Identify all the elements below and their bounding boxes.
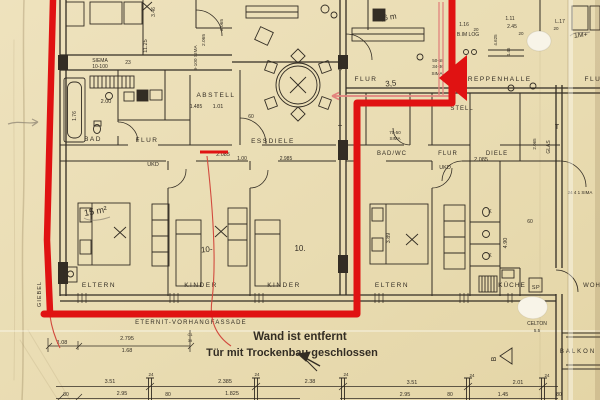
plan-label: 39: [188, 338, 193, 343]
plan-label: 1.16: [459, 22, 469, 28]
plan-label: T: [555, 124, 560, 131]
plan-label: 2.795: [120, 336, 134, 342]
floorplan-svg: BADFLURABSTELLESSDIELEELTERNKINDERKINDER…: [0, 0, 600, 400]
plan-label: B: [491, 356, 498, 361]
plan-label: 1.825: [225, 391, 239, 397]
facade-label: ETERNIT-VORHANGFASSADE: [135, 320, 247, 326]
page-edge: [595, 0, 600, 400]
plan-label: 5.5: [534, 328, 541, 333]
plan-label: 2.385: [218, 379, 232, 385]
plan-label: 70-50: [389, 130, 401, 135]
plan-label: 24: [469, 373, 475, 378]
plan-label: 23: [125, 60, 131, 66]
plan-label: 1.11: [505, 16, 515, 22]
hole-punch: [527, 31, 551, 51]
plan-label: 80: [63, 392, 69, 398]
plan-label: 2.065: [219, 19, 225, 31]
stairs-comb: [479, 276, 497, 292]
plan-label: 80: [556, 392, 562, 398]
plan-label: CELTON: [527, 321, 547, 327]
plan-label: BAD: [84, 136, 102, 143]
plan-label: 2.01: [513, 380, 524, 386]
plan-label: 1.76: [72, 111, 78, 121]
plan-label: TREPPENHALLE: [462, 76, 531, 83]
annotation-wall-removed: Wand ist entfernt: [253, 331, 347, 343]
plan-label: 2.45: [507, 24, 517, 30]
plan-label: 1.68: [122, 348, 133, 354]
plan-label: 3.89: [386, 233, 392, 244]
plan-label: SIMA: [389, 136, 400, 141]
plan-label: 4.90: [503, 238, 509, 249]
hole-punch: [518, 297, 548, 319]
plan-label: DIELE: [486, 151, 508, 157]
plan-label: GLAS: [338, 57, 344, 71]
plan-label: 24: [254, 372, 260, 377]
plan-label: 24: [148, 372, 154, 377]
annotation-door-closed: Tür mit Trockenbau geschlossen: [206, 347, 378, 359]
plan-label: 10-: [201, 244, 214, 254]
plan-label: BAD/WC: [377, 151, 407, 157]
plan-label: FLUR: [136, 137, 159, 144]
plan-label: 2.38: [305, 379, 316, 385]
plan-label: 1.01: [213, 104, 224, 110]
plan-label: 11.25: [143, 39, 149, 52]
plan-label: L.17: [555, 19, 565, 25]
plan-label: 9-100 SIMA: [193, 45, 199, 71]
plan-label: KINDER: [267, 282, 301, 289]
plan-label: 2.00: [101, 99, 112, 105]
plan-label: 2.085: [474, 157, 488, 163]
appliance: [137, 90, 148, 101]
plan-label: B.IM LOG: [457, 32, 479, 38]
plan-label: UKD: [439, 165, 451, 171]
plan-label: ABSTELL: [196, 92, 235, 99]
floorplan-scan: BADFLURABSTELLESSDIELEELTERNKINDERKINDER…: [0, 0, 600, 400]
plan-label: 2.065: [201, 34, 207, 46]
plan-label: ELTERN: [375, 282, 409, 289]
plan-label: 24: [343, 372, 349, 377]
plan-label: 10.: [294, 244, 305, 253]
plan-label: ELTERN: [82, 282, 116, 289]
plan-label: T: [338, 125, 343, 132]
plan-label: FLUR: [438, 151, 458, 157]
plan-label: KÜCHE: [498, 281, 526, 289]
plan-label: ESSDIELE: [251, 138, 295, 145]
plan-label: 2.985: [280, 156, 293, 162]
plan-label: 60: [248, 114, 254, 120]
plan-label: 3.51: [407, 380, 418, 386]
plan-label: 3.51: [105, 379, 116, 385]
plan-label: FLUR: [355, 76, 378, 83]
plan-label: 2.95: [400, 392, 411, 398]
plan-label: 3.46: [151, 7, 157, 17]
plan-label: BALKON: [560, 349, 596, 355]
plan-label: GLAS: [546, 140, 552, 154]
plan-label: 1.00: [237, 156, 247, 162]
plan-label: SIMA: [431, 71, 442, 76]
plan-label: 24: [544, 373, 550, 378]
plan-label: 3,5: [385, 78, 397, 88]
gable-label: GIEBEL: [37, 281, 43, 307]
plan-label: 20: [553, 26, 559, 31]
plan-label: STELL: [450, 106, 473, 112]
plan-label: 20: [518, 31, 524, 36]
plan-label: 1.485: [190, 104, 203, 110]
plan-label: 4.625: [493, 34, 498, 46]
plan-label: 1.45: [498, 392, 509, 398]
plan-label: 80: [447, 392, 453, 398]
plan-label: 60: [527, 219, 533, 225]
plan-label: 2.065: [532, 138, 537, 150]
plan-label: 10-100: [92, 64, 108, 70]
plan-label: SP: [532, 285, 540, 291]
vertical-crease: [568, 0, 573, 400]
plan-label: C1: [187, 332, 193, 337]
plan-label: UKD: [147, 162, 159, 168]
plan-label: 2.95: [117, 391, 128, 397]
plan-label: 4.45: [506, 47, 511, 56]
plan-label: 80: [165, 392, 171, 398]
